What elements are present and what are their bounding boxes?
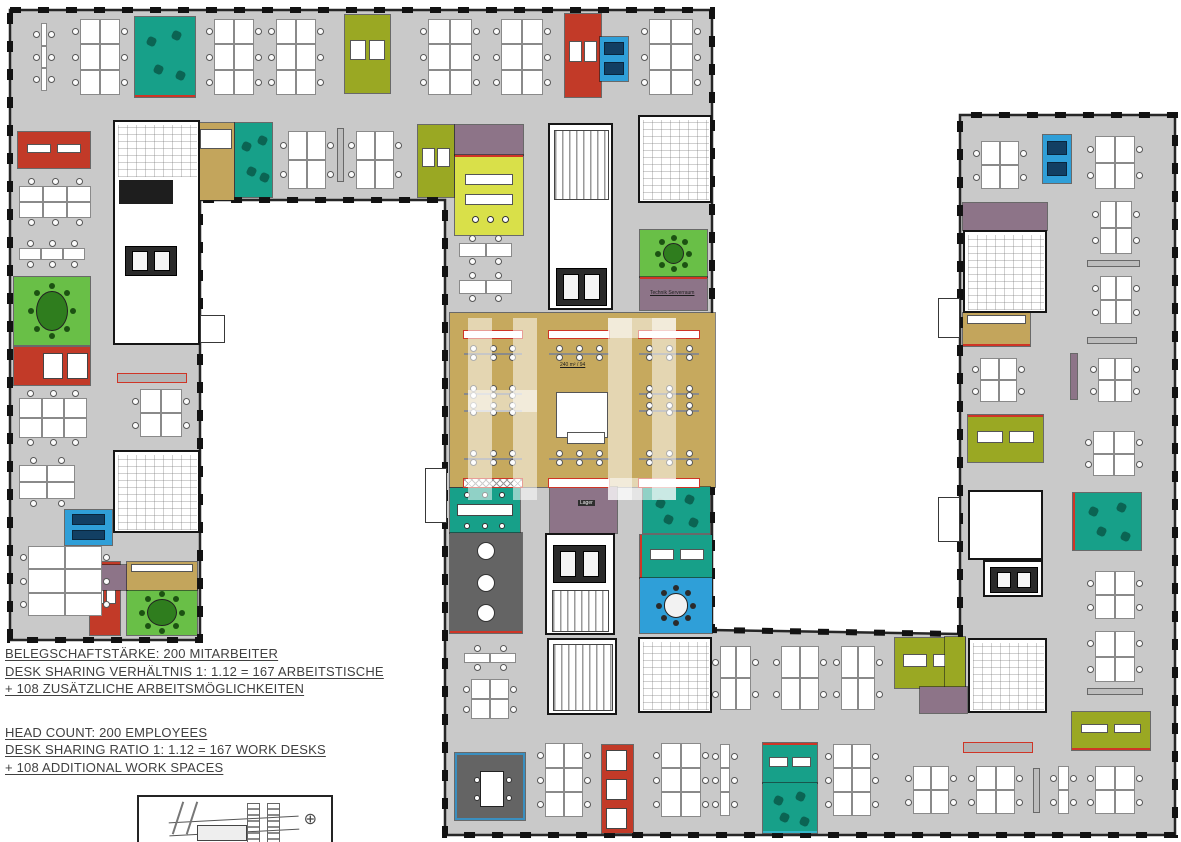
chair (1018, 388, 1025, 395)
booth-desk (1047, 162, 1067, 176)
north-compass-icon: ⊕ (304, 809, 317, 829)
chair (469, 295, 476, 302)
chair (76, 178, 83, 185)
desk (1115, 631, 1135, 657)
chair (686, 392, 693, 399)
desk (999, 380, 1018, 402)
desk (1095, 790, 1115, 814)
desk (486, 280, 513, 294)
chair (1136, 461, 1143, 468)
chair (833, 659, 840, 666)
desk (63, 248, 85, 260)
desk (671, 70, 693, 95)
chair (1136, 799, 1143, 806)
chair (544, 54, 551, 61)
chair (576, 354, 583, 361)
bean-bag (146, 36, 158, 48)
chair (28, 308, 34, 314)
kitchenette (198, 123, 234, 200)
desk (307, 131, 326, 160)
lounge-room (235, 123, 272, 197)
desk-cluster (420, 18, 480, 96)
desk-cluster (833, 645, 883, 711)
chair (584, 801, 591, 808)
chair (20, 554, 27, 561)
desk (852, 768, 871, 792)
desk (100, 70, 120, 95)
desk-cluster (132, 388, 190, 438)
desk (214, 19, 234, 44)
desk-cluster (20, 545, 110, 617)
chair (103, 554, 110, 561)
desk (841, 646, 858, 678)
chair (656, 603, 662, 609)
chair (556, 354, 563, 361)
desk (1114, 431, 1135, 454)
chair (556, 459, 563, 466)
desk (276, 70, 296, 95)
desk (450, 19, 472, 44)
desk (1000, 141, 1019, 165)
desk (564, 792, 583, 817)
room-label: 240 m² / 94 (560, 362, 585, 368)
desk (1100, 201, 1116, 228)
chair (463, 686, 470, 693)
desk (996, 790, 1016, 814)
chair (348, 171, 355, 178)
desk (490, 679, 509, 699)
desk (47, 482, 75, 499)
chair (752, 659, 759, 666)
chair (420, 79, 427, 86)
chair (30, 500, 37, 507)
phone-booths (14, 347, 90, 385)
storage-cabinet (1070, 353, 1078, 400)
cafeteria-counter (548, 330, 610, 339)
chair (1087, 172, 1094, 179)
desk (1100, 300, 1116, 324)
desk (1000, 165, 1019, 189)
desk (852, 744, 871, 768)
chair (317, 54, 324, 61)
booth-desk (72, 530, 105, 541)
chair (1136, 580, 1143, 587)
chair (1020, 174, 1027, 181)
desk (19, 186, 43, 202)
desk (1115, 571, 1135, 595)
desk (1100, 228, 1116, 255)
chair (493, 28, 500, 35)
desk-cluster (348, 130, 402, 190)
desk (437, 148, 449, 167)
desk-cluster (641, 18, 701, 96)
desk (769, 757, 787, 767)
chair (673, 585, 679, 591)
chair (694, 28, 701, 35)
desk (276, 19, 296, 44)
chair (1133, 388, 1140, 395)
desk (80, 70, 100, 95)
wc-area (973, 643, 1044, 710)
desk (976, 766, 996, 790)
chair (950, 775, 957, 782)
chair (872, 753, 879, 760)
chair (132, 422, 139, 429)
chair (712, 801, 719, 808)
desk (57, 144, 81, 153)
desk (471, 679, 490, 699)
focus-room (565, 14, 601, 97)
chair (659, 239, 665, 245)
chair (655, 251, 661, 257)
chair (268, 79, 275, 86)
desk-cluster (972, 357, 1025, 403)
desk (19, 465, 47, 482)
chair (500, 645, 507, 652)
desk (501, 19, 522, 44)
chair (30, 457, 37, 464)
chair (731, 801, 738, 808)
chair (50, 390, 57, 397)
round-table (477, 542, 495, 560)
desk (980, 380, 999, 402)
chair (255, 79, 262, 86)
desk (1095, 136, 1115, 163)
stair-dark (119, 180, 173, 204)
chair (1090, 388, 1097, 395)
desk (999, 358, 1018, 380)
workshop-room (450, 533, 522, 633)
core-wc (638, 115, 712, 203)
desk (459, 243, 486, 257)
elevator-car (997, 572, 1012, 589)
desk-sharing-en: DESK SHARING RATIO 1: 1.12 = 167 WORK DE… (5, 741, 326, 759)
bean-bag (687, 517, 699, 529)
desk (522, 70, 543, 95)
chair (145, 623, 151, 629)
desk (464, 653, 490, 663)
desk (428, 44, 450, 69)
chair (395, 171, 402, 178)
bean-bag (174, 70, 186, 82)
desk (501, 70, 522, 95)
core-wc (113, 450, 200, 533)
desk (288, 160, 307, 189)
chair (472, 216, 479, 223)
elevator (125, 246, 177, 276)
chair (537, 801, 544, 808)
chair (20, 578, 27, 585)
chair (495, 295, 502, 302)
office-room (345, 15, 390, 93)
chair (950, 799, 957, 806)
chair (255, 28, 262, 35)
desk (720, 678, 736, 710)
desk (564, 768, 583, 793)
kitchen-counter (131, 564, 193, 571)
chair (584, 777, 591, 784)
desk-cluster (268, 18, 324, 96)
desk (1095, 163, 1115, 190)
chair (502, 216, 509, 223)
entrance-box (938, 298, 960, 338)
desk (736, 678, 752, 710)
desk-cluster (1050, 765, 1077, 815)
bean-bag (259, 172, 271, 184)
storage-cabinet (337, 128, 344, 182)
chair (682, 262, 688, 268)
chair (510, 686, 517, 693)
chair (973, 150, 980, 157)
chair (327, 142, 334, 149)
desk-cluster (1092, 200, 1140, 255)
chair (103, 601, 110, 608)
desk-cluster (33, 22, 55, 92)
chair (52, 219, 59, 226)
core-wc (963, 230, 1047, 313)
chair (206, 54, 213, 61)
chair (50, 439, 57, 446)
desk (913, 766, 931, 790)
chair (1085, 439, 1092, 446)
desk (833, 768, 852, 792)
chair (469, 235, 476, 242)
chair (52, 178, 59, 185)
desk-cluster (773, 645, 827, 711)
storage-cabinet (963, 742, 1033, 753)
chair (1133, 285, 1140, 292)
chair (33, 54, 40, 61)
chair (1016, 775, 1023, 782)
elevator-car (563, 274, 579, 299)
chair (1133, 211, 1140, 218)
round-table (477, 574, 495, 592)
chair (1087, 604, 1094, 611)
desk (1115, 657, 1135, 683)
watermark (608, 478, 676, 500)
chair (685, 590, 691, 596)
booth-desk (72, 514, 105, 525)
desk (661, 743, 681, 768)
site-inset: ⊕ (137, 795, 333, 842)
chair (544, 28, 551, 35)
wc-area (118, 455, 197, 530)
chair (49, 261, 56, 268)
chair (49, 283, 55, 289)
desk (1115, 163, 1135, 190)
storage-cabinet (117, 373, 187, 383)
chair (58, 500, 65, 507)
chair (968, 799, 975, 806)
chair (690, 603, 696, 609)
desk (501, 44, 522, 69)
chair (145, 596, 151, 602)
focus-room (18, 132, 90, 168)
desk (471, 699, 490, 719)
chair (139, 610, 145, 616)
desk (564, 743, 583, 768)
chair (752, 691, 759, 698)
chair (671, 235, 677, 241)
desk (1116, 300, 1132, 324)
bean-bag (663, 513, 675, 525)
chair (49, 333, 55, 339)
staircase (553, 644, 613, 711)
desk (858, 646, 875, 678)
chair (1136, 640, 1143, 647)
desk (288, 131, 307, 160)
plan-legend: BELEGSCHAFTSTÄRKE: 200 MITARBEITER DESK … (5, 645, 384, 776)
desk (681, 768, 701, 793)
elevator-car (583, 551, 599, 576)
desk (234, 19, 254, 44)
meeting-room (127, 590, 197, 635)
desk (42, 398, 65, 418)
staircase (552, 590, 609, 632)
round-table (477, 604, 495, 622)
desk (792, 757, 810, 767)
desk (1115, 358, 1132, 380)
lounge-room (135, 17, 195, 97)
desk (649, 70, 671, 95)
desk (720, 646, 736, 678)
desk (490, 699, 509, 719)
desk (41, 68, 47, 91)
core-elevators (983, 560, 1043, 597)
site-building (197, 825, 247, 841)
desk (1098, 380, 1115, 402)
storage-room (550, 487, 617, 533)
desk (41, 248, 63, 260)
chair (49, 240, 56, 247)
desk (19, 482, 47, 499)
chair (686, 459, 693, 466)
chair (33, 31, 40, 38)
chair (872, 777, 879, 784)
chair (905, 775, 912, 782)
desk (27, 144, 51, 153)
chair (1133, 309, 1140, 316)
chair (183, 398, 190, 405)
chair (28, 178, 35, 185)
booth-cell (606, 779, 628, 800)
chair (653, 752, 660, 759)
headcount-en: HEAD COUNT: 200 EMPLOYEES (5, 724, 207, 742)
chair (1085, 461, 1092, 468)
bean-bag (683, 494, 695, 506)
desk (649, 19, 671, 44)
chair (596, 345, 603, 352)
desk-cluster (905, 765, 957, 815)
elevator-car (154, 251, 170, 271)
desk (661, 768, 681, 793)
core-wc (638, 637, 712, 713)
room-label: Lager (578, 500, 595, 506)
chair (58, 457, 65, 464)
elevator-car (560, 551, 576, 576)
cafeteria-table-row (548, 345, 610, 361)
desk-cluster (206, 18, 262, 96)
desk (80, 19, 100, 44)
chair (653, 777, 660, 784)
chair (876, 659, 883, 666)
kitchenette (127, 562, 197, 590)
desk (720, 768, 730, 792)
booth-cell (606, 750, 628, 771)
chair (702, 801, 709, 808)
chair (686, 354, 693, 361)
chair (474, 664, 481, 671)
legend-german-block: BELEGSCHAFTSTÄRKE: 200 MITARBEITER DESK … (5, 645, 384, 698)
chair (1087, 640, 1094, 647)
chair (48, 31, 55, 38)
storage-cabinet (1087, 337, 1137, 344)
chair (1087, 799, 1094, 806)
chair (280, 142, 287, 149)
chair (420, 28, 427, 35)
desk-cluster (493, 18, 551, 96)
desk (428, 19, 450, 44)
desk (931, 790, 949, 814)
watermark (652, 318, 676, 500)
desk-cluster (18, 240, 86, 268)
chair (576, 450, 583, 457)
desk (41, 23, 47, 46)
chair (495, 272, 502, 279)
desk (161, 413, 182, 437)
chair (1136, 439, 1143, 446)
desk (43, 202, 67, 218)
desk (720, 744, 730, 768)
chair (584, 752, 591, 759)
desk-cluster (18, 457, 76, 507)
chair (773, 659, 780, 666)
desk-cluster (458, 235, 513, 265)
chair (1133, 237, 1140, 244)
desk (1095, 766, 1115, 790)
booth-desk (604, 42, 624, 55)
desk (100, 19, 120, 44)
chair (348, 142, 355, 149)
desk (80, 44, 100, 69)
cafeteria-table-row (548, 450, 610, 466)
desk (100, 44, 120, 69)
chair (70, 308, 76, 314)
watermark (608, 318, 676, 338)
desk (140, 413, 161, 437)
chair (712, 691, 719, 698)
wc-area (643, 120, 709, 200)
desk (833, 744, 852, 768)
chair (1090, 366, 1097, 373)
desk (234, 70, 254, 95)
chair (317, 79, 324, 86)
chair (876, 691, 883, 698)
phone-booth (65, 510, 112, 545)
chair (825, 777, 832, 784)
booth-desk (1047, 141, 1067, 155)
desk (781, 678, 800, 710)
chair (121, 28, 128, 35)
conference-table (147, 599, 176, 626)
desk (1095, 631, 1115, 657)
phone-booth (1043, 135, 1071, 183)
storage-cabinet (1033, 768, 1040, 813)
chair (1087, 666, 1094, 673)
chair (327, 171, 334, 178)
desk (981, 165, 1000, 189)
bean-bag (245, 166, 257, 178)
